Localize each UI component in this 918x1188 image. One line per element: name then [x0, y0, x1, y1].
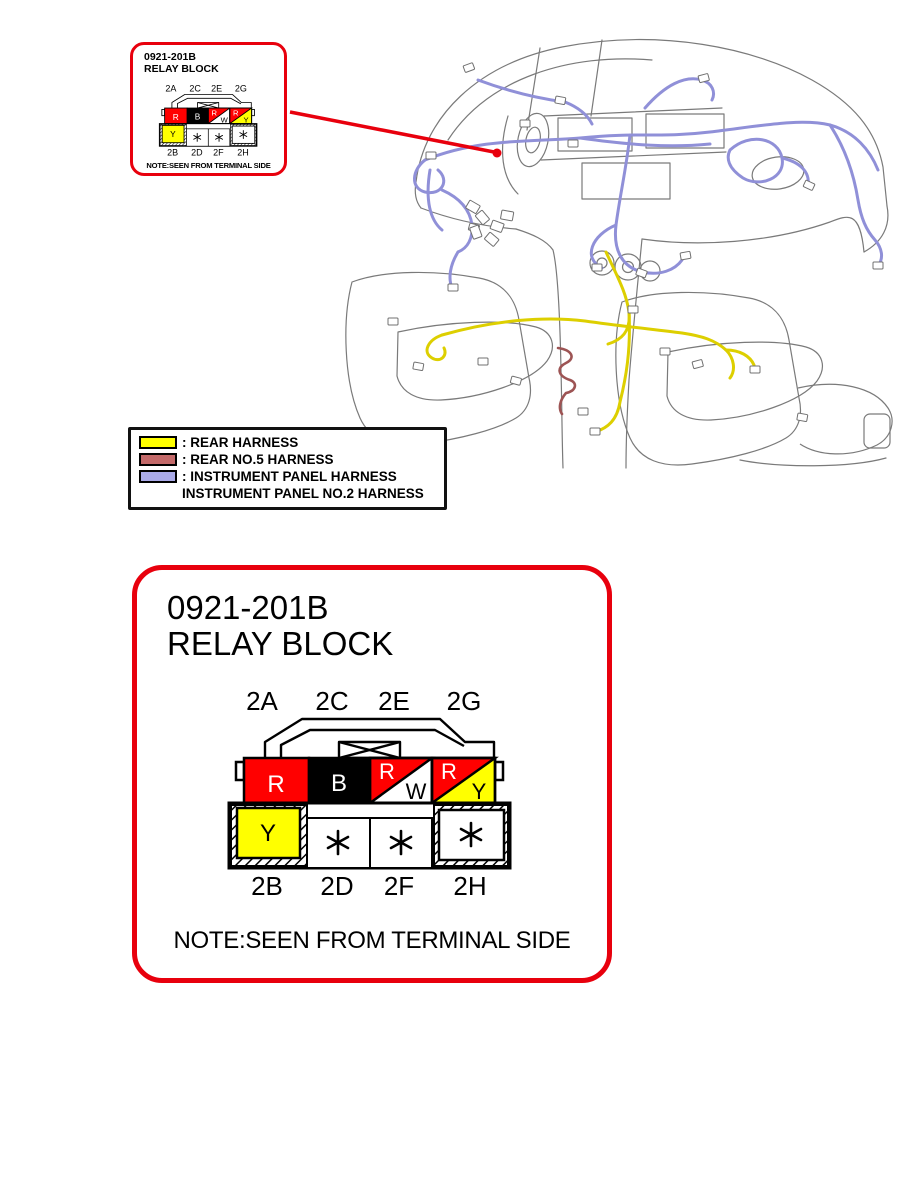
svg-text:2F: 2F — [384, 871, 414, 901]
detail-part-name: RELAY BLOCK — [167, 626, 607, 662]
svg-text:2F: 2F — [213, 148, 224, 158]
svg-text:Y: Y — [260, 820, 276, 847]
legend-item: : REAR HARNESS — [139, 434, 438, 451]
connector-cap-outline — [265, 719, 494, 758]
svg-text:2B: 2B — [167, 148, 178, 158]
legend-item: INSTRUMENT PANEL NO.2 HARNESS — [139, 485, 438, 502]
legend-swatch-rear-no5-harness — [139, 453, 177, 466]
connector-cap-outline — [171, 95, 250, 109]
svg-text:Y: Y — [170, 129, 176, 139]
svg-text:2H: 2H — [453, 871, 486, 901]
rear-quarter-outline — [798, 384, 892, 454]
callout-part-number: 0921-201B — [144, 51, 284, 63]
svg-text:2A: 2A — [246, 686, 278, 716]
bottom-pin-labels: 2B 2D 2F 2H — [167, 148, 249, 158]
callout-title: 0921-201B RELAY BLOCK — [133, 45, 284, 75]
steering-column-line — [503, 116, 518, 194]
svg-text:2C: 2C — [315, 686, 348, 716]
bottom-pin-labels: 2B 2D 2F 2H — [251, 871, 487, 901]
legend-item: : INSTRUMENT PANEL HARNESS — [139, 468, 438, 485]
svg-text:R: R — [379, 759, 395, 784]
bottom-pin-row: Y — [159, 124, 256, 147]
top-pin-labels: 2A 2C 2E 2G — [246, 686, 481, 716]
rear-harness-path — [427, 252, 754, 432]
legend-label: : INSTRUMENT PANEL HARNESS — [182, 468, 397, 485]
callout-note: NOTE:SEEN FROM TERMINAL SIDE — [133, 161, 284, 170]
detail-part-number: 0921-201B — [167, 590, 607, 626]
svg-text:W: W — [220, 115, 228, 124]
legend-item: : REAR NO.5 HARNESS — [139, 451, 438, 468]
detail-note: NOTE:SEEN FROM TERMINAL SIDE — [137, 927, 607, 955]
left-seat-outline — [346, 272, 553, 445]
manual-page: 0921-201B RELAY BLOCK 2A 2C 2E 2G — [0, 0, 918, 1188]
right-seat-outline — [616, 292, 823, 465]
legend-swatch-instrument-panel-harness — [139, 470, 177, 483]
svg-text:W: W — [406, 779, 427, 804]
svg-text:B: B — [194, 111, 200, 121]
svg-text:B: B — [331, 770, 347, 797]
harness-legend: : REAR HARNESS : REAR NO.5 HARNESS : INS… — [128, 427, 447, 510]
svg-text:R: R — [232, 108, 238, 117]
callout-part-name: RELAY BLOCK — [144, 63, 284, 75]
svg-text:2D: 2D — [191, 148, 203, 158]
svg-text:R: R — [172, 112, 178, 122]
relay-block-callout: 0921-201B RELAY BLOCK 2A 2C 2E 2G — [130, 42, 287, 176]
svg-text:2E: 2E — [378, 686, 410, 716]
svg-text:2A: 2A — [165, 83, 176, 93]
svg-text:2B: 2B — [251, 871, 283, 901]
svg-text:R: R — [267, 771, 284, 798]
dashboard-outline — [415, 40, 888, 468]
svg-text:R: R — [211, 108, 217, 117]
bottom-pin-row: Y — [229, 803, 510, 868]
relay-connector-diagram-large: 2A 2C 2E 2G — [222, 680, 522, 905]
svg-text:2C: 2C — [189, 83, 201, 93]
svg-text:Y: Y — [243, 115, 248, 124]
svg-text:2G: 2G — [234, 83, 246, 93]
detail-title: 0921-201B RELAY BLOCK — [137, 570, 607, 662]
legend-label: INSTRUMENT PANEL NO.2 HARNESS — [182, 485, 424, 502]
svg-text:2E: 2E — [211, 83, 222, 93]
legend-label: : REAR NO.5 HARNESS — [182, 451, 334, 468]
svg-text:R: R — [441, 759, 457, 784]
vehicle-harness-illustration — [330, 20, 910, 470]
svg-text:2H: 2H — [237, 148, 249, 158]
relay-connector-diagram-small: 2A 2C 2E 2G — [157, 81, 261, 159]
svg-text:2G: 2G — [447, 686, 482, 716]
legend-label: : REAR HARNESS — [182, 434, 298, 451]
top-pin-labels: 2A 2C 2E 2G — [165, 83, 247, 93]
svg-text:2D: 2D — [320, 871, 353, 901]
svg-text:Y: Y — [472, 779, 487, 804]
legend-swatch-rear-harness — [139, 436, 177, 449]
relay-block-detail-box: 0921-201B RELAY BLOCK 2A 2C 2E 2G — [132, 565, 612, 983]
